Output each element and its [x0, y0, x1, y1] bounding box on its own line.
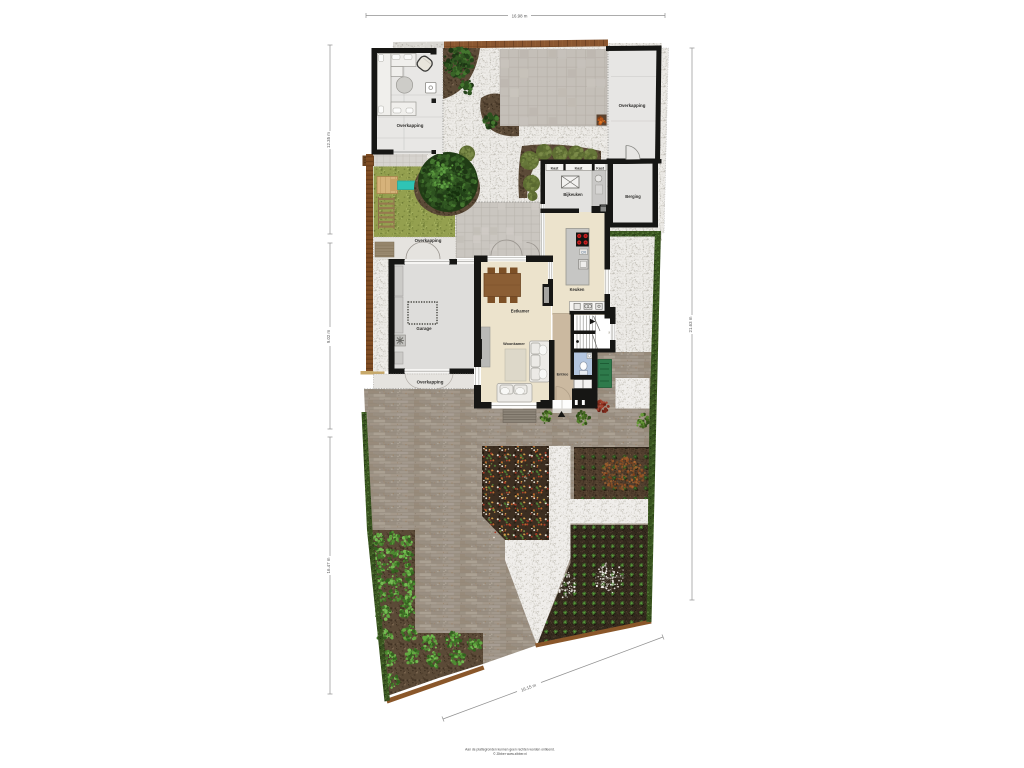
- svg-text:CR: CR: [581, 250, 586, 254]
- svg-text:Entree: Entree: [557, 373, 569, 377]
- svg-text:Overkapping: Overkapping: [397, 123, 424, 128]
- svg-text:Eetkamer: Eetkamer: [511, 309, 530, 314]
- svg-text:Keuken: Keuken: [570, 287, 585, 292]
- svg-text:Kast: Kast: [575, 166, 584, 170]
- svg-text:16.47 m: 16.47 m: [326, 557, 331, 573]
- svg-text:© Zibber www.zibber.nl: © Zibber www.zibber.nl: [493, 752, 527, 756]
- svg-text:Overkapping: Overkapping: [619, 103, 646, 108]
- svg-text:16.98 m: 16.98 m: [512, 13, 528, 18]
- svg-text:Overkapping: Overkapping: [415, 238, 442, 243]
- svg-text:Overkapping: Overkapping: [417, 380, 444, 385]
- svg-text:21.63 m: 21.63 m: [688, 316, 693, 332]
- svg-text:12.35 m: 12.35 m: [326, 132, 331, 148]
- svg-text:Bijkeuken: Bijkeuken: [563, 192, 583, 197]
- svg-text:Garage: Garage: [416, 326, 432, 331]
- svg-text:Kast: Kast: [596, 166, 605, 170]
- svg-text:Kast: Kast: [551, 166, 560, 170]
- svg-text:Berging: Berging: [625, 194, 641, 199]
- svg-text:9.02 m: 9.02 m: [326, 329, 331, 343]
- svg-text:Woonkamer: Woonkamer: [503, 342, 525, 346]
